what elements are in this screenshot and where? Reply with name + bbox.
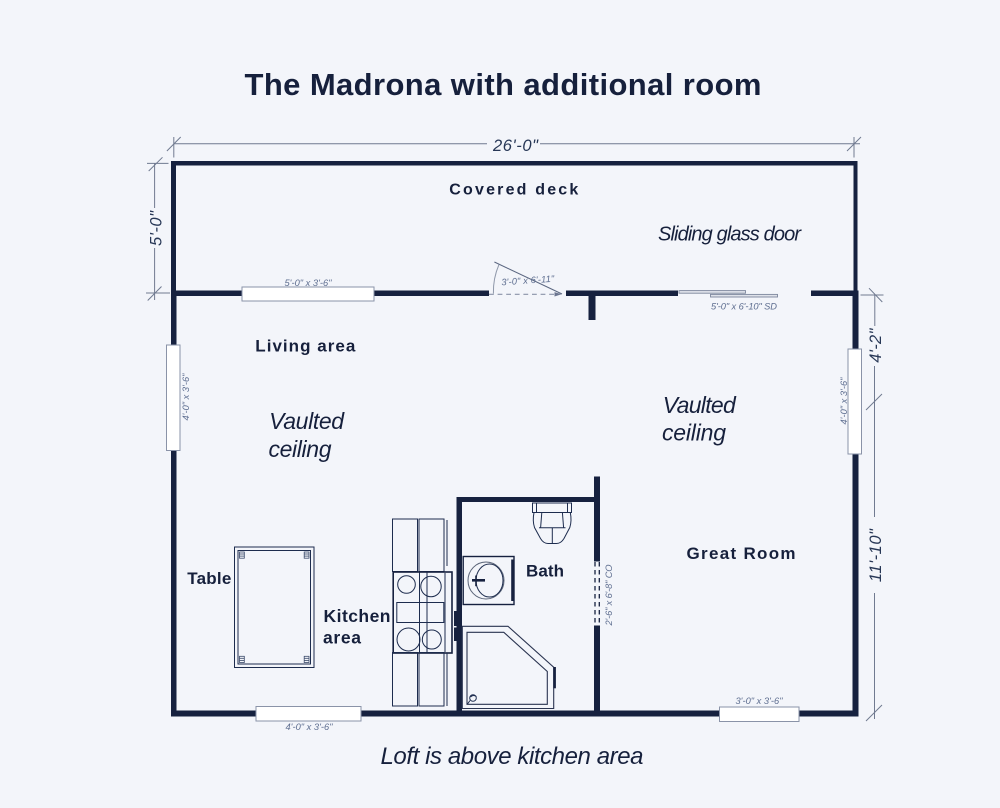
svg-text:3'-0" x 3'-6": 3'-0" x 3'-6" <box>736 696 784 706</box>
svg-text:Sliding glass door: Sliding glass door <box>658 223 802 245</box>
svg-text:ceiling: ceiling <box>662 420 726 446</box>
svg-text:11'-10": 11'-10" <box>867 528 885 582</box>
svg-text:Kitchen: Kitchen <box>324 606 391 626</box>
svg-text:Living area: Living area <box>255 336 356 355</box>
svg-text:Loft is above kitchen area: Loft is above kitchen area <box>381 743 644 770</box>
svg-text:Table: Table <box>187 569 231 588</box>
svg-text:5'-0" x 3'-6": 5'-0" x 3'-6" <box>285 278 333 288</box>
svg-text:Vaulted: Vaulted <box>663 392 737 418</box>
svg-text:26'-0": 26'-0" <box>492 137 539 155</box>
svg-text:Bath: Bath <box>526 562 564 581</box>
svg-text:ceiling: ceiling <box>269 436 332 462</box>
svg-text:The Madrona with additional ro: The Madrona with additional room <box>245 67 762 102</box>
svg-text:4'-0" x 3'-6": 4'-0" x 3'-6" <box>286 722 334 732</box>
svg-text:4'-0" x 3'-6": 4'-0" x 3'-6" <box>839 377 849 425</box>
svg-text:5'-0": 5'-0" <box>148 210 166 246</box>
svg-text:5'-0" x 6'-10" SD: 5'-0" x 6'-10" SD <box>711 302 777 312</box>
svg-text:area: area <box>323 628 361 648</box>
svg-text:Covered deck: Covered deck <box>449 182 578 199</box>
svg-text:4'-2": 4'-2" <box>867 328 885 363</box>
svg-text:Vaulted: Vaulted <box>269 408 345 434</box>
svg-text:2'-6" x 6'-8" CO: 2'-6" x 6'-8" CO <box>604 565 614 627</box>
svg-text:4'-0" x 3'-6": 4'-0" x 3'-6" <box>181 373 191 421</box>
